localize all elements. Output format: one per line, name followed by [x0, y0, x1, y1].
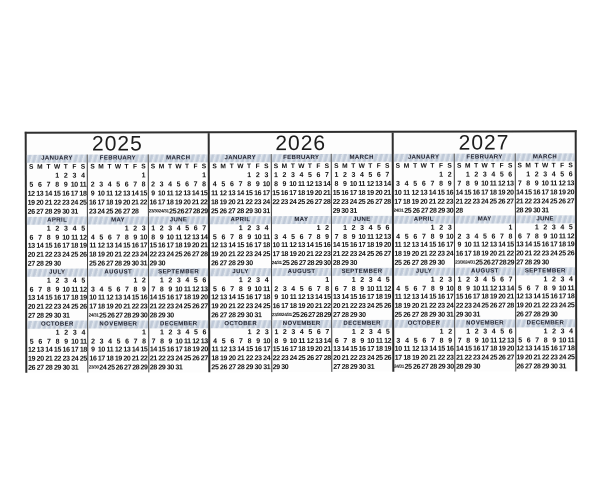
date-cell: 12: [306, 181, 315, 188]
week-row: 21222324252627: [515, 197, 574, 206]
date-cell: 3: [166, 225, 175, 232]
date-cell: 19: [183, 243, 192, 250]
date-cell: 25: [489, 198, 498, 205]
date-cell: 16: [323, 242, 332, 249]
date-cell: 3: [541, 171, 550, 178]
date-cell: 9: [88, 191, 97, 198]
date-cell: 19: [516, 355, 525, 362]
date-cell: 8: [245, 181, 254, 188]
week-row: 24/31252627282930: [394, 363, 454, 372]
date-cell: 26: [402, 260, 411, 267]
date-cell: 30: [281, 364, 290, 371]
date-cell: 16: [358, 294, 367, 301]
date-cell: 28: [455, 208, 464, 215]
date-cell: 22: [53, 200, 62, 207]
date-cell: 9: [446, 337, 455, 344]
date-cell: 11: [211, 347, 220, 354]
date-cell: 19: [79, 243, 88, 250]
date-cell: 15: [506, 242, 515, 249]
date-cell: 2: [532, 171, 541, 178]
date-cell: 15: [245, 190, 254, 197]
date-cell: 23: [131, 252, 140, 259]
date-cell: 14: [114, 243, 123, 250]
date-cell: 9: [280, 338, 289, 345]
date-cell: 21: [515, 198, 524, 205]
week-row: 1: [455, 223, 514, 232]
date-cell: 19: [497, 189, 506, 196]
weekday-label: F: [497, 161, 506, 170]
date-cell: 27: [27, 313, 36, 320]
week-row: 293031: [332, 207, 391, 216]
date-cell: 25: [70, 304, 79, 311]
date-cell: 24: [253, 251, 262, 258]
week-row: 3456789: [89, 285, 148, 294]
date-cell: 24: [174, 304, 183, 311]
date-cell: 2: [437, 225, 446, 232]
date-cell: 7: [236, 338, 245, 345]
month-block: APRIL12345678910111213141516171819202122…: [394, 216, 455, 268]
date-cell: 21: [131, 199, 140, 206]
date-cell: 30: [550, 311, 559, 318]
date-cell: 8: [349, 286, 358, 293]
date-cell: 6: [191, 225, 200, 232]
date-cell: 6: [314, 172, 323, 179]
date-cell: 21: [228, 303, 237, 310]
week-row: 123: [211, 328, 271, 337]
date-cell: 4: [394, 285, 403, 292]
month-name-band: DECEMBER: [332, 320, 391, 328]
date-cell: 3: [289, 329, 298, 336]
year-title: 2026: [210, 133, 391, 154]
date-cell: 30: [245, 312, 254, 319]
week-row: 2728293031: [27, 312, 87, 321]
date-cell: 20: [374, 190, 383, 197]
date-cell: 12: [411, 190, 420, 197]
date-cell: 22: [341, 251, 350, 258]
date-cell: 3: [97, 182, 106, 189]
month-name-band: DECEMBER: [149, 320, 208, 328]
week-row: 28: [455, 206, 514, 215]
date-cell: 10: [549, 233, 558, 240]
weekday-label: S: [445, 162, 454, 171]
week-row: 19202122232425: [516, 302, 575, 311]
date-cell: 6: [122, 181, 131, 188]
date-cell: 28: [149, 364, 158, 371]
date-cell: 24: [99, 365, 107, 372]
date-cell: 18: [97, 304, 106, 311]
month-name-band: FEBRUARY: [272, 154, 331, 162]
week-row: 14151617181920: [149, 294, 208, 303]
date-cell: 30: [446, 364, 454, 371]
date-cell: 7: [332, 234, 341, 241]
weekday-label: T: [428, 162, 437, 171]
date-cell: 5: [306, 329, 315, 336]
month-name-band: JULY: [394, 268, 454, 276]
date-cell: 17: [349, 190, 358, 197]
date-cell: 31: [262, 364, 271, 371]
date-cell: 18: [70, 243, 79, 250]
week-row: 262728293031: [210, 311, 270, 320]
month-block: MARCHSMTWTFS1234567891011121314151617181…: [514, 153, 575, 215]
month-block: JULY123456789101112131415161718192021222…: [394, 268, 455, 320]
date-cell: 11: [481, 285, 490, 292]
week-row: 1234567: [455, 275, 514, 284]
weekday-label: S: [210, 162, 219, 171]
date-cell: 20: [183, 199, 192, 206]
date-cell: 4: [174, 225, 183, 232]
date-cell: 23: [245, 251, 254, 258]
months-grid: JANUARYSMTWTFS12345678910111213141516171…: [27, 154, 209, 372]
date-cell: 27: [420, 208, 428, 215]
date-cell: 6: [506, 328, 515, 335]
date-cell: 9: [358, 286, 367, 293]
date-cell: 22: [464, 355, 473, 362]
date-cell: 1: [314, 225, 323, 232]
date-cell: 28: [499, 260, 507, 267]
date-cell: 7: [200, 225, 209, 232]
date-cell: 3: [97, 338, 106, 345]
date-cell: 11: [403, 346, 412, 353]
date-cell: 8: [341, 234, 350, 241]
week-row: 45678910: [210, 180, 270, 189]
week-row: 282930: [455, 363, 514, 372]
weekday-label: F: [558, 161, 567, 170]
date-cell: 26: [489, 303, 498, 310]
date-cell: 4: [402, 181, 411, 188]
date-cell: 27: [411, 260, 420, 267]
date-cell: 16: [139, 295, 148, 302]
date-cell: 12: [297, 294, 306, 301]
week-row: 17181920212223: [89, 303, 148, 312]
date-cell: 19: [383, 346, 392, 353]
date-cell: 10: [262, 181, 271, 188]
date-cell: 23: [437, 251, 446, 258]
date-cell: 15: [314, 242, 323, 249]
week-row: 12: [89, 276, 148, 285]
date-cell: 14: [44, 191, 53, 198]
date-cell: 12: [375, 233, 384, 240]
date-cell: 10: [394, 346, 403, 353]
date-cell: 1: [272, 329, 281, 336]
date-cell: 19: [411, 355, 420, 362]
date-cell: 8: [53, 182, 62, 189]
date-cell: 30: [472, 364, 481, 371]
date-cell: 25: [489, 355, 498, 362]
date-cell: 1: [323, 277, 332, 284]
date-cell: 25: [567, 303, 576, 310]
date-cell: 27: [383, 251, 392, 258]
week-row: 9101112131415: [88, 189, 147, 198]
date-cell: 3: [549, 224, 558, 231]
month-name-band: SEPTEMBER: [516, 267, 575, 275]
date-cell: 14: [323, 338, 332, 345]
weekday-header-row: SMTWTFS: [210, 162, 270, 171]
date-cell: 18: [280, 251, 289, 258]
date-cell: 25: [70, 252, 79, 259]
date-cell: 14: [314, 294, 323, 301]
date-cell: 23: [88, 209, 97, 216]
date-cell: 23/30: [455, 261, 465, 266]
date-cell: 11: [375, 337, 384, 344]
weekday-label: S: [566, 161, 575, 170]
date-cell: 23: [550, 355, 559, 362]
date-cell: 23: [349, 251, 358, 258]
weekday-label: W: [236, 162, 245, 171]
date-cell: 24: [70, 356, 79, 363]
date-cell: 28: [429, 364, 437, 371]
date-cell: 16: [437, 294, 446, 301]
date-cell: 8: [314, 234, 323, 241]
date-cell: 2: [446, 328, 455, 335]
weekday-label: W: [541, 161, 550, 170]
week-row: 15161718192021: [332, 189, 391, 198]
date-cell: 1: [131, 277, 140, 284]
date-cell: 25: [558, 251, 567, 258]
date-cell: 13: [506, 180, 515, 187]
date-cell: 8: [140, 338, 149, 345]
date-cell: 1: [349, 329, 358, 336]
date-cell: 11: [375, 285, 384, 292]
month-name-band: APRIL: [27, 217, 87, 225]
date-cell: 10: [62, 286, 71, 293]
date-cell: 10: [349, 181, 358, 188]
date-cell: 6: [374, 172, 383, 179]
date-cell: 3: [89, 286, 98, 293]
date-cell: 19: [402, 303, 411, 310]
date-cell: 11: [489, 337, 498, 344]
date-cell: 14: [191, 190, 200, 197]
date-cell: 8: [428, 233, 437, 240]
date-cell: 29: [315, 260, 323, 267]
date-cell: 5: [498, 328, 507, 335]
date-cell: 26: [383, 355, 392, 362]
date-cell: 4: [472, 233, 481, 240]
date-cell: 7: [36, 286, 45, 293]
month-name-band: MAY: [455, 215, 514, 223]
date-cell: 28: [341, 364, 350, 371]
date-cell: 29: [245, 364, 254, 371]
week-row: 45678910: [211, 337, 271, 346]
month-name-band: JULY: [210, 268, 270, 276]
date-cell: 22: [437, 199, 446, 206]
date-cell: 20: [420, 355, 429, 362]
date-cell: 3: [394, 337, 403, 344]
date-cell: 7: [228, 286, 237, 293]
date-cell: 6: [219, 234, 228, 241]
date-cell: 26: [412, 208, 420, 215]
date-cell: 17: [175, 347, 184, 354]
week-row: 23/3024/312526272829: [455, 259, 514, 268]
week-row: 2930: [149, 259, 208, 268]
date-cell: 17: [358, 242, 367, 249]
date-cell: 23: [445, 199, 454, 206]
date-cell: 17: [394, 199, 403, 206]
date-cell: 15: [272, 190, 281, 197]
week-row: 16171819202122: [88, 198, 147, 207]
date-cell: 2: [245, 225, 254, 232]
date-cell: 27: [506, 355, 515, 362]
date-cell: 27: [491, 260, 499, 267]
date-cell: 18: [70, 295, 79, 302]
date-cell: 9: [550, 337, 559, 344]
date-cell: 31: [139, 260, 148, 267]
date-cell: 5: [79, 277, 88, 284]
date-cell: 16: [89, 356, 98, 363]
date-cell: 3: [272, 234, 281, 241]
week-row: 1: [272, 276, 331, 285]
date-cell: 27: [332, 364, 341, 371]
week-row: 567891011: [516, 336, 575, 345]
date-cell: 25: [375, 355, 384, 362]
week-row: 24/31252627282930: [394, 207, 454, 216]
date-cell: 17: [97, 356, 106, 363]
date-cell: 11: [183, 338, 192, 345]
date-cell: 13: [105, 243, 114, 250]
date-cell: 15: [157, 295, 166, 302]
date-cell: 20: [489, 251, 498, 258]
date-cell: 16: [166, 347, 175, 354]
date-cell: 27: [516, 259, 525, 266]
date-cell: 24: [97, 209, 106, 216]
month-name-band: FEBRUARY: [88, 154, 147, 162]
weekday-label: T: [349, 162, 358, 171]
date-cell: 8: [532, 233, 541, 240]
month-name-band: JUNE: [149, 216, 208, 224]
date-cell: 14: [236, 347, 245, 354]
date-cell: 24: [366, 303, 375, 310]
week-row: 9101112131415: [455, 241, 514, 250]
date-cell: 13: [114, 295, 123, 302]
date-cell: 29: [323, 312, 331, 319]
date-cell: 19: [566, 242, 575, 249]
month-block: JUNE123456789101112131415161718192021222…: [331, 216, 392, 268]
date-cell: 7: [131, 338, 140, 345]
date-cell: 5: [366, 172, 375, 179]
date-cell: 8: [236, 286, 245, 293]
week-row: 123456: [455, 170, 514, 179]
weekday-label: F: [253, 162, 262, 171]
month-name-band: AUGUST: [455, 267, 514, 275]
date-cell: 20: [27, 304, 36, 311]
week-row: 567891011: [27, 181, 87, 190]
date-cell: 19: [219, 199, 228, 206]
date-cell: 20: [383, 242, 392, 249]
date-cell: 15: [53, 347, 62, 354]
date-cell: 12: [366, 181, 375, 188]
date-cell: 26: [219, 208, 228, 215]
date-cell: 16: [437, 242, 446, 249]
week-row: 10111213141516: [272, 242, 331, 251]
week-row: 11121314151617: [88, 242, 147, 251]
date-cell: 9: [166, 286, 175, 293]
week-row: 21222324252627: [149, 355, 208, 364]
date-cell: 5: [558, 171, 567, 178]
month-name-band: OCTOBER: [27, 321, 87, 329]
weekday-label: T: [472, 162, 481, 171]
date-cell: 23: [166, 356, 175, 363]
date-cell: 12: [27, 191, 36, 198]
week-row: 22232425262728: [272, 354, 331, 363]
date-cell: 13: [297, 242, 306, 249]
date-cell: 26: [177, 208, 185, 215]
date-cell: 9: [62, 338, 71, 345]
date-cell: 12: [566, 233, 575, 240]
date-cell: 23: [280, 199, 289, 206]
date-cell: 3: [254, 277, 263, 284]
date-cell: 12: [383, 337, 392, 344]
date-cell: 16: [445, 190, 454, 197]
date-cell: 30: [166, 364, 175, 371]
weekday-label: M: [402, 162, 411, 171]
date-cell: 5: [219, 338, 228, 345]
date-cell: 27: [185, 208, 193, 215]
date-cell: 10: [280, 295, 289, 302]
date-cell: 8: [455, 285, 464, 292]
date-cell: 12: [489, 285, 498, 292]
date-cell: 9: [437, 233, 446, 240]
date-cell: 27: [27, 261, 36, 268]
week-row: 78910111213: [515, 179, 574, 188]
date-cell: 23: [157, 252, 166, 259]
date-cell: 1: [463, 172, 472, 179]
week-row: 78910111213: [149, 337, 208, 346]
date-cell: 9: [280, 181, 289, 188]
date-cell: 21: [323, 190, 332, 197]
date-cell: 9: [472, 181, 481, 188]
date-cell: 1: [140, 329, 149, 336]
date-cell: 23: [323, 251, 332, 258]
weekday-header-row: SMTWTFS: [88, 162, 147, 171]
date-cell: 18: [183, 295, 192, 302]
date-cell: 13: [36, 347, 45, 354]
date-cell: 14: [228, 243, 237, 250]
weekday-label: S: [139, 162, 148, 171]
date-cell: 29: [428, 312, 437, 319]
month-block: APRIL12345678910111213141516171819202122…: [27, 217, 88, 269]
date-cell: 17: [446, 294, 455, 301]
date-cell: 22: [506, 251, 515, 258]
week-row: 12345: [27, 277, 87, 286]
weekday-label: S: [506, 161, 515, 170]
week-row: 1234: [27, 172, 87, 181]
date-cell: 25: [211, 364, 220, 371]
date-cell: 21: [341, 355, 350, 362]
date-cell: 4: [211, 338, 220, 345]
date-cell: 1: [524, 171, 533, 178]
date-cell: 28: [524, 259, 533, 266]
date-cell: 2: [89, 338, 98, 345]
date-cell: 12: [27, 347, 36, 354]
week-row: 45678910: [394, 232, 454, 241]
date-cell: 5: [97, 234, 106, 241]
date-cell: 15: [44, 243, 53, 250]
date-cell: 10: [464, 242, 473, 249]
date-cell: 20: [506, 346, 515, 353]
week-row: 19202122232425: [27, 199, 87, 208]
month-block: MAY1234567891011121314151617181920212223…: [271, 216, 332, 268]
date-cell: 27: [191, 252, 200, 259]
date-cell: 20: [314, 190, 323, 197]
date-cell: 28: [36, 261, 45, 268]
date-cell: 7: [533, 337, 542, 344]
date-cell: 12: [210, 243, 219, 250]
date-cell: 13: [383, 233, 392, 240]
date-cell: 3: [262, 329, 271, 336]
date-cell: 14: [455, 346, 464, 353]
date-cell: 13: [489, 242, 498, 249]
date-cell: 7: [428, 337, 437, 344]
week-row: 19202122232425: [516, 354, 575, 363]
